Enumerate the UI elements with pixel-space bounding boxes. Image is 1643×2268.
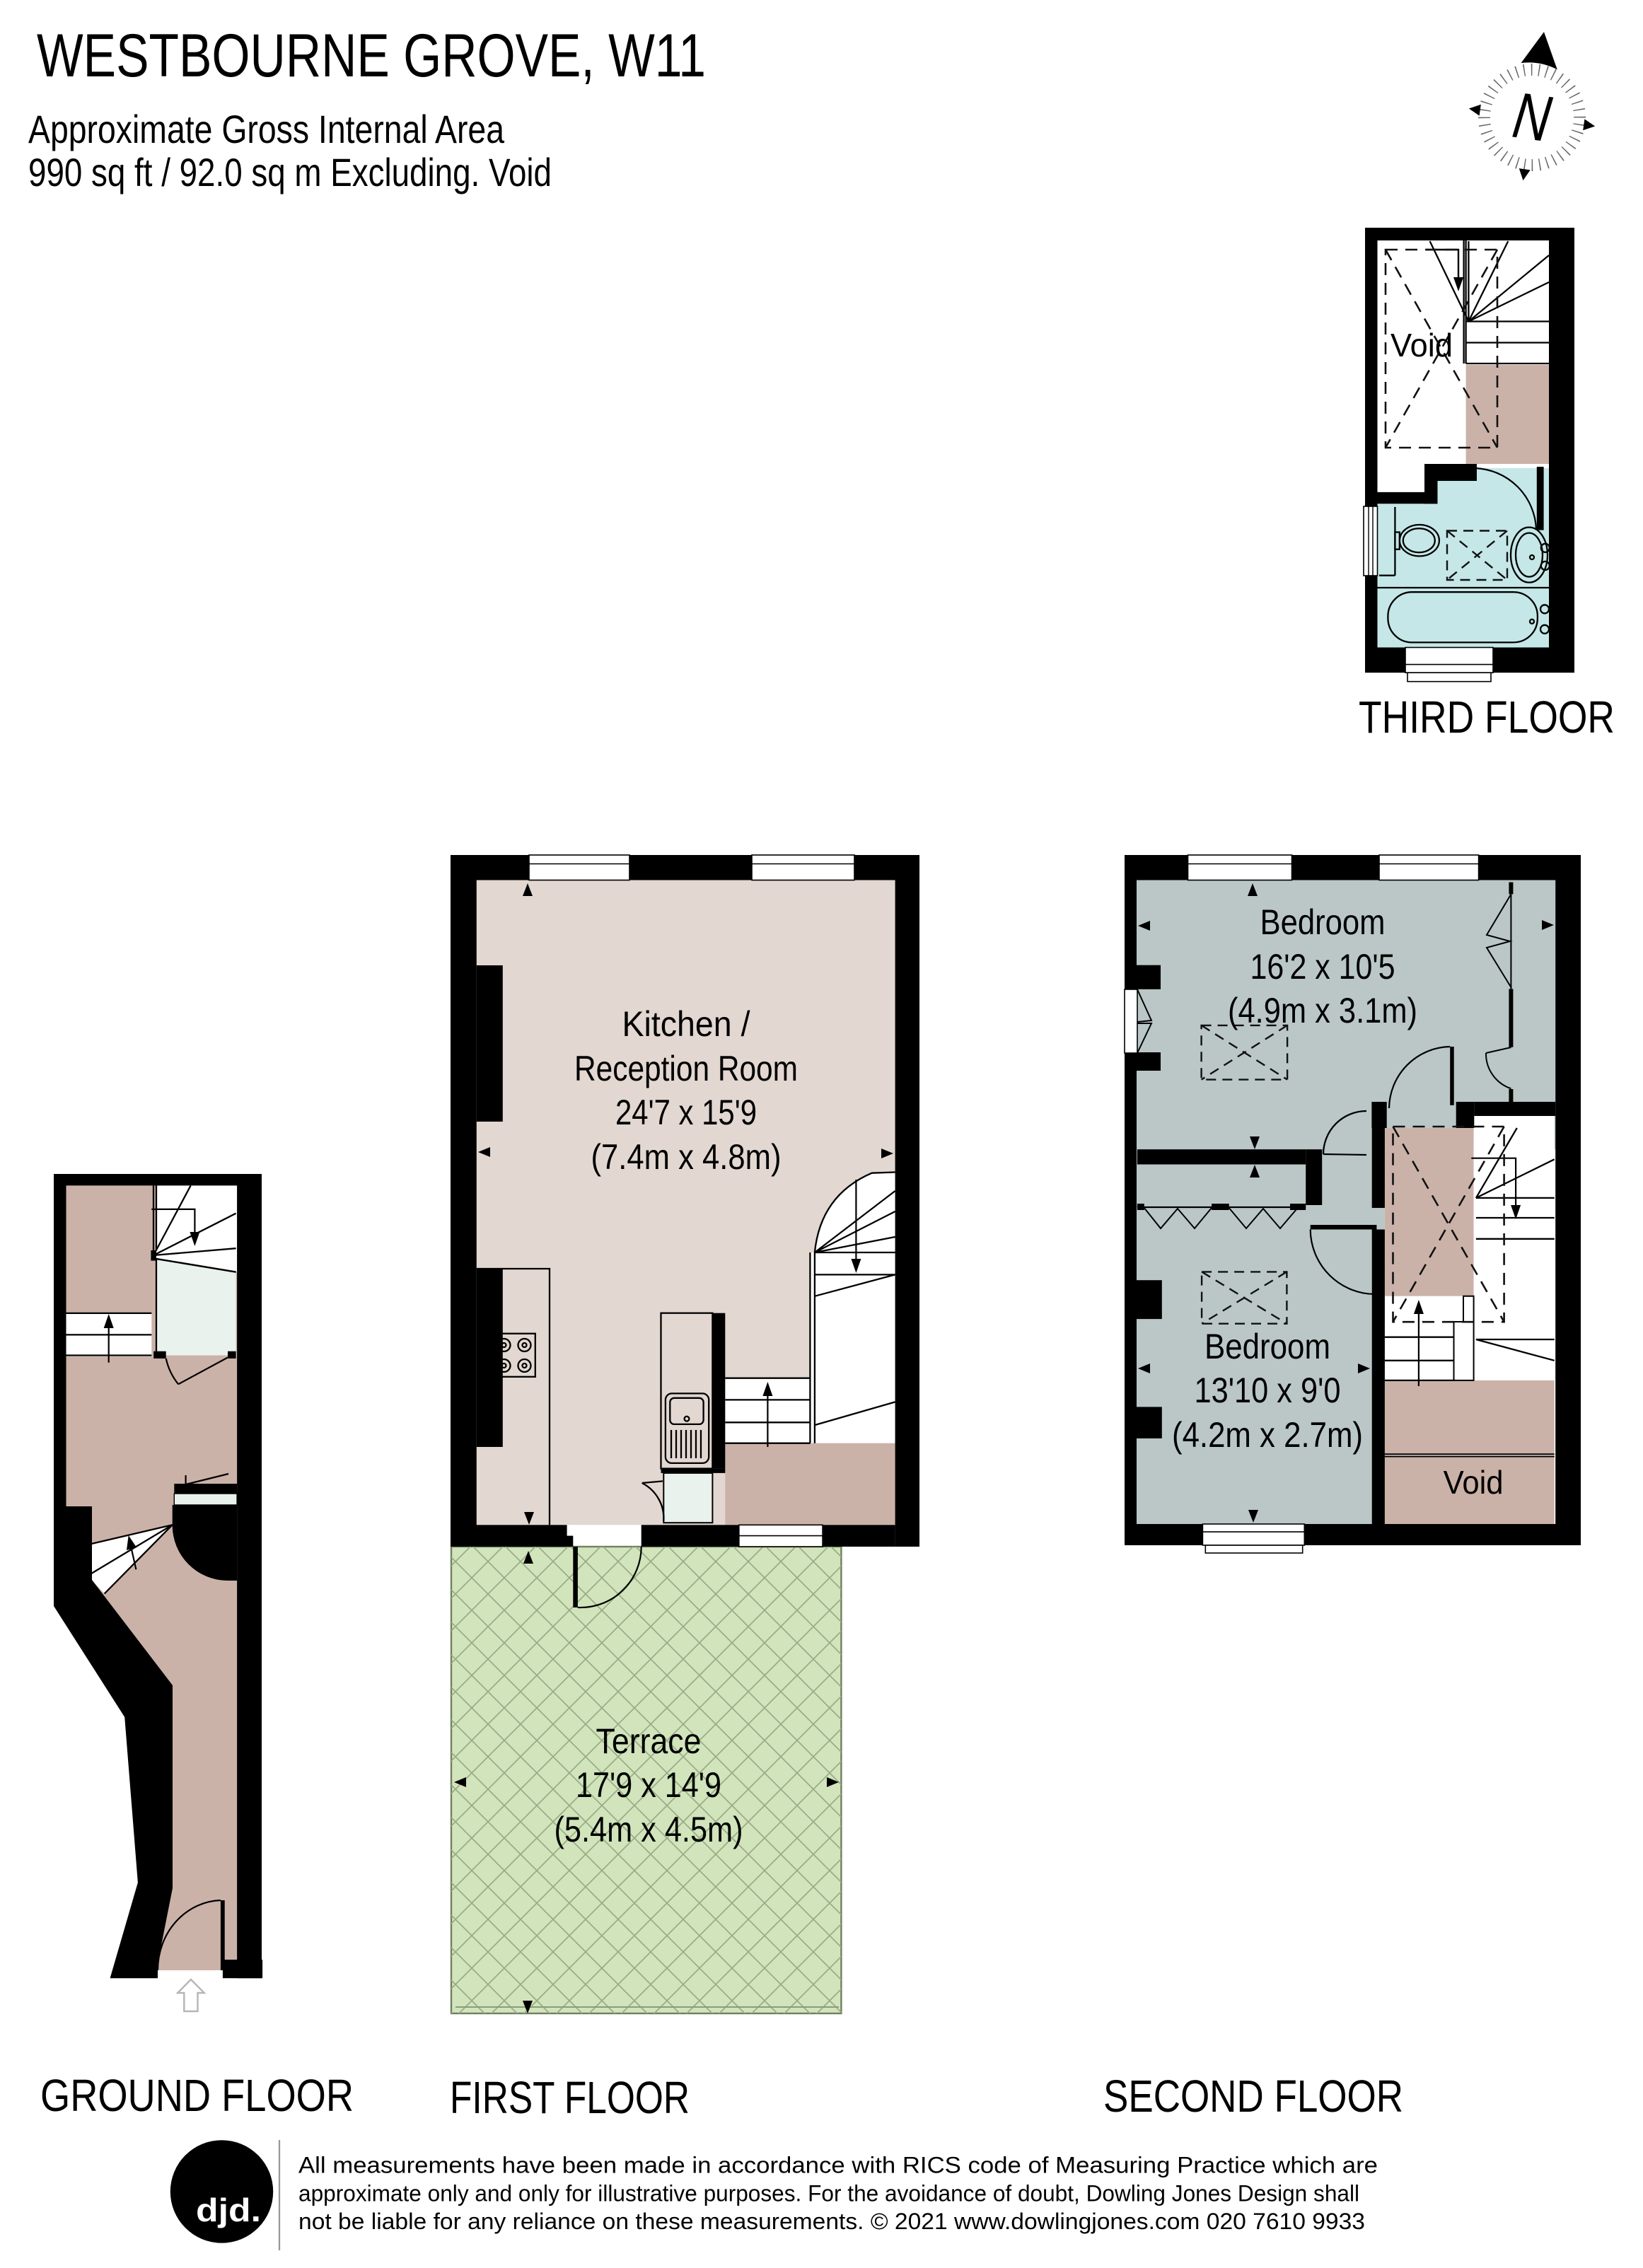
svg-text:not be liable for any reliance: not be liable for any reliance on these … bbox=[298, 2209, 1365, 2234]
svg-text:17'9 x 14'9: 17'9 x 14'9 bbox=[576, 1765, 721, 1805]
svg-text:16'2 x 10'5: 16'2 x 10'5 bbox=[1250, 947, 1395, 987]
svg-text:approximate only and only for: approximate only and only for illustrati… bbox=[298, 2180, 1359, 2206]
svg-text:Void: Void bbox=[1444, 1464, 1504, 1501]
svg-text:Void: Void bbox=[1391, 327, 1453, 364]
svg-text:All measurements have been mad: All measurements have been made in accor… bbox=[298, 2153, 1378, 2178]
svg-text:(4.9m x 3.1m): (4.9m x 3.1m) bbox=[1228, 991, 1417, 1030]
svg-text:WESTBOURNE GROVE, W11: WESTBOURNE GROVE, W11 bbox=[37, 22, 706, 90]
svg-text:GROUND FLOOR: GROUND FLOOR bbox=[40, 2070, 354, 2121]
svg-text:djd.: djd. bbox=[196, 2192, 261, 2228]
svg-text:(7.4m x 4.8m): (7.4m x 4.8m) bbox=[591, 1137, 782, 1177]
svg-text:THIRD FLOOR: THIRD FLOOR bbox=[1359, 692, 1615, 743]
svg-text:Reception Room: Reception Room bbox=[574, 1049, 798, 1088]
svg-text:Terrace: Terrace bbox=[596, 1721, 702, 1761]
svg-text:FIRST FLOOR: FIRST FLOOR bbox=[450, 2072, 690, 2123]
svg-text:Bedroom: Bedroom bbox=[1204, 1327, 1330, 1366]
svg-text:990 sq ft / 92.0 sq m Excludin: 990 sq ft / 92.0 sq m Excluding. Void bbox=[28, 150, 552, 194]
svg-text:SECOND FLOOR: SECOND FLOOR bbox=[1103, 2071, 1403, 2122]
svg-text:13'10 x 9'0: 13'10 x 9'0 bbox=[1195, 1371, 1341, 1410]
svg-text:Bedroom: Bedroom bbox=[1260, 902, 1386, 942]
svg-text:24'7 x 15'9: 24'7 x 15'9 bbox=[615, 1093, 757, 1132]
svg-text:Kitchen /: Kitchen / bbox=[622, 1004, 750, 1044]
svg-text:(4.2m x 2.7m): (4.2m x 2.7m) bbox=[1172, 1415, 1363, 1455]
svg-text:Approximate Gross Internal Are: Approximate Gross Internal Area bbox=[28, 107, 505, 151]
svg-text:(5.4m x 4.5m): (5.4m x 4.5m) bbox=[555, 1810, 743, 1849]
